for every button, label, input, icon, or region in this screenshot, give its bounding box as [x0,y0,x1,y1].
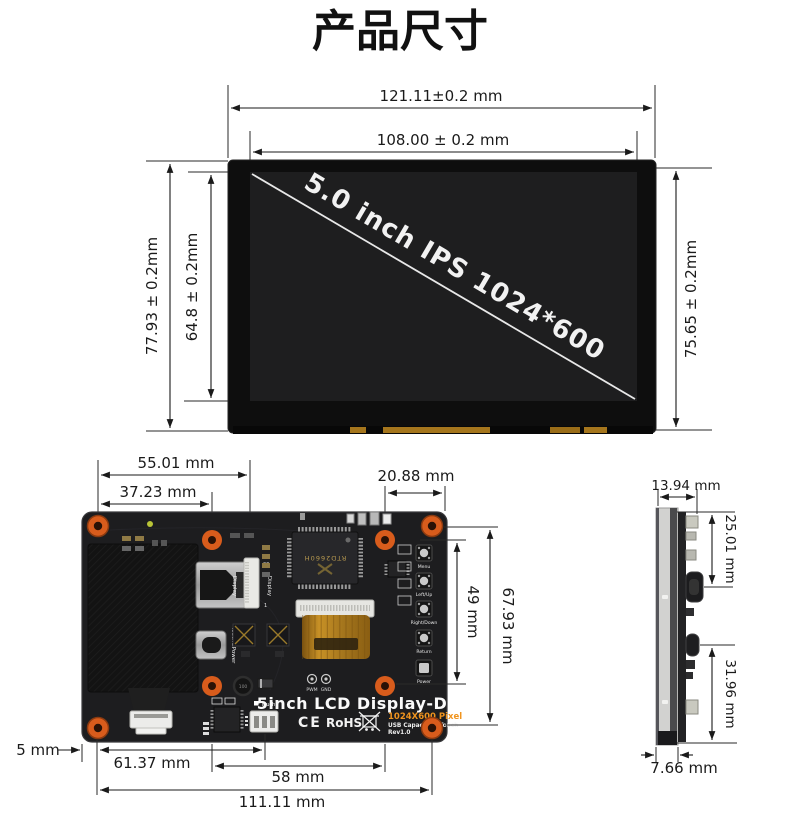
page-title: 产品尺寸 [312,6,488,57]
button-power: Power [416,660,432,685]
flex-contacts [350,427,607,433]
dim-button-span: 49 mm [464,585,482,638]
lcd-back-pad [88,544,198,692]
side-connectors [686,516,703,714]
product-name-silk: 5inch LCD Display-D [257,694,448,713]
button-left-up: Left/Up [416,573,433,598]
hole-inner-bottom-right [375,676,395,696]
hdmi-silk-label: Display [231,576,237,597]
chip-marking: RTD2660H [304,554,346,562]
hdmi-port: Display [196,562,248,608]
product-dimensions-diagram: 产品尺寸 121.11±0.2 mm 108.00 ± 0.2 mm 77.93… [0,0,800,828]
dim-top-hole-span: 55.01 mm [138,454,215,472]
fpc-pin-first: 1 [264,603,267,609]
dim-edge-to-hole: 5 mm [16,741,60,759]
hole-top-right [422,516,443,537]
button-menu: Menu [416,545,432,570]
led [147,521,153,527]
board-view: Display 20 1 Display Touch&Power RTD2660… [82,512,462,742]
side-view [656,508,703,745]
dim-panel-thickness: 7.66 mm [650,759,717,777]
ce-mark: CE [298,715,322,731]
bottom-ffc-connector [130,711,172,734]
button-return: Return [416,630,432,655]
touch-controller-chip [213,707,242,732]
dim-total-thickness: 13.94 mm [651,478,720,494]
dim-usb-to-bottom: 31.96 mm [722,659,738,728]
dim-outer-width: 121.11±0.2 mm [380,87,503,105]
hole-top-left [88,516,109,537]
dim-glass-height: 75.65 ± 0.2mm [682,240,700,358]
hole-inner-top-left [202,530,222,550]
dim-edge-to-touch: 61.37 mm [114,754,191,772]
eeprom-chip [387,561,408,577]
ffc-cable [296,600,374,659]
gold-ribbon [302,615,370,659]
dim-bottom-hole-span: 111.11 mm [239,793,325,811]
revision-silk: Rev1.0 [388,730,410,736]
button-left-up-label: Left/Up [416,592,433,598]
hole-bottom-right [422,718,443,739]
dim-active-width: 108.00 ± 0.2 mm [377,131,509,149]
button-return-label: Return [416,649,431,655]
pcb-edge [678,512,686,742]
gnd-label: GND [321,687,332,693]
dim-top-right: 20.88 mm [378,467,455,485]
usb-c-side [686,634,699,656]
hole-inner-bottom-left [202,676,222,696]
hole-inner-top-right [375,530,395,550]
driver-chip: RTD2660H [290,530,361,587]
dim-active-height: 64.8 ± 0.2mm [183,233,201,342]
hole-bottom-left [88,718,109,739]
dim-right-hole-span: 67.93 mm [499,588,517,665]
rohs-mark: RoHS [326,716,362,730]
dim-outer-height: 77.93 ± 0.2mm [143,237,161,355]
dim-top-hole-pitch: 37.23 mm [120,483,197,501]
front-view-screen: 5.0 inch IPS 1024*600 [228,160,656,434]
flex-tape [128,688,170,712]
inductor-marking: 100 [239,684,248,690]
fpc-silk-label: Display [266,576,272,597]
dim-bottom-hole-pitch: 58 mm [271,768,324,786]
diagram-svg: 产品尺寸 121.11±0.2 mm 108.00 ± 0.2 mm 77.93… [0,0,800,828]
pwm-label: PWM [306,687,317,693]
button-right-down-label: Right/Down [411,620,438,626]
dim-top-to-hdmi: 25.01 mm [722,514,738,583]
button-menu-label: Menu [418,564,431,570]
